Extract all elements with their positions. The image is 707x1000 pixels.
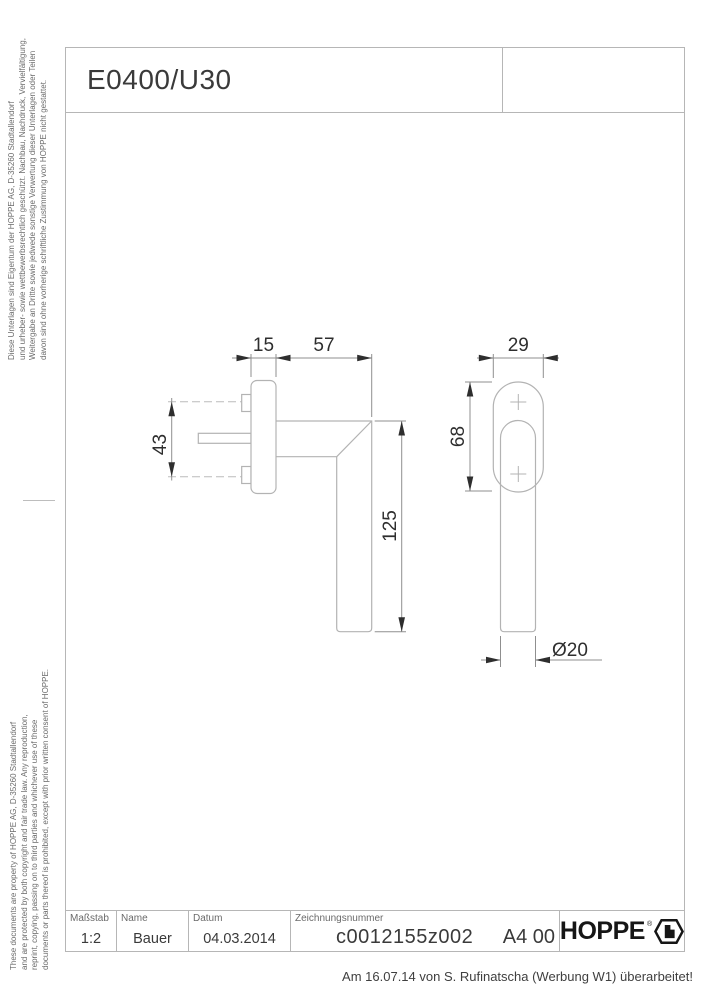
name-value: Bauer <box>117 931 188 947</box>
title-block-cell-logo: HOPPE ® <box>560 911 684 951</box>
drawing-number-value: c0012155z002 <box>336 926 473 949</box>
copyright-de-line4: davon sind ohne vorherige schriftliche Z… <box>39 40 50 360</box>
screw-bottom <box>242 467 251 484</box>
dim-plate-thickness: 15 <box>253 335 274 356</box>
dim-grip-length: 125 <box>380 510 401 542</box>
name-label: Name <box>121 913 148 924</box>
copyright-de-line3: Weitergabe an Dritte sowie jedwede sonst… <box>28 40 39 360</box>
title-block-cell-scale: Maßstab 1:2 <box>66 911 117 951</box>
screw-center-marks <box>510 394 526 482</box>
title-block: Maßstab 1:2 Name Bauer Datum 04.03.2014 … <box>66 910 684 951</box>
handle-grip-side <box>276 421 372 632</box>
copyright-en-line1: These documents are property of HOPPE AG… <box>9 660 20 970</box>
drawing-number-label: Zeichnungsnummer <box>295 913 383 924</box>
dim-screw-distance: 43 <box>150 434 171 455</box>
title-row-empty-cell <box>502 48 684 112</box>
dim-grip-diameter: Ø20 <box>552 640 588 661</box>
side-view: 15 57 43 125 <box>150 335 406 632</box>
dim-rosette-height: 68 <box>448 426 469 447</box>
rosette-plate-side <box>251 381 276 494</box>
technical-drawing: 15 57 43 125 <box>65 112 686 912</box>
screw-top <box>242 395 251 412</box>
copyright-de-line2: und urheber- sowie wettbewerbsrechtlich … <box>18 40 29 360</box>
hoppe-logo: HOPPE ® <box>560 917 684 946</box>
copyright-note-german: Diese Unterlagen sind Eigentum der HOPPE… <box>7 40 49 360</box>
hoppe-hexagon-icon <box>654 918 684 945</box>
dim-68 <box>465 382 492 491</box>
title-block-cell-name: Name Bauer <box>117 911 189 951</box>
scale-label: Maßstab <box>70 913 109 924</box>
date-label: Datum <box>193 913 222 924</box>
handle-grip-bend-edge <box>337 421 372 457</box>
copyright-en-line2: and are protected by both copyright and … <box>20 660 31 970</box>
copyright-en-line3: reprint, copying, passing on to third pa… <box>30 660 41 970</box>
copyright-en-line4: documents or parts thereof is prohibited… <box>41 660 52 970</box>
dim-d20-arrows <box>486 657 550 664</box>
margin-separator-line <box>23 500 55 501</box>
hoppe-logo-text: HOPPE <box>560 917 645 946</box>
copyright-note-english: These documents are property of HOPPE AG… <box>9 660 51 970</box>
scale-value: 1:2 <box>66 931 116 947</box>
dim-rosette-width: 29 <box>508 335 529 356</box>
title-block-cell-drawing-number: Zeichnungsnummer c0012155z002 A4 00 <box>291 911 560 951</box>
revision-note: Am 16.07.14 von S. Rufinatscha (Werbung … <box>342 969 693 984</box>
screw-centerlines <box>168 402 262 477</box>
sheet-format: A4 00 <box>503 926 555 949</box>
date-value: 04.03.2014 <box>189 931 290 947</box>
copyright-de-line1: Diese Unterlagen sind Eigentum der HOPPE… <box>7 40 18 360</box>
handle-grip-front <box>501 421 536 632</box>
registered-trademark-icon: ® <box>647 921 652 928</box>
title-row: E0400/U30 <box>66 48 684 113</box>
front-view: 29 68 Ø20 <box>448 335 602 667</box>
spindle <box>198 433 251 443</box>
title-block-cell-date: Datum 04.03.2014 <box>189 911 291 951</box>
dim-grip-offset: 57 <box>313 335 334 356</box>
title-cell: E0400/U30 <box>66 48 502 112</box>
page-title: E0400/U30 <box>87 64 232 96</box>
